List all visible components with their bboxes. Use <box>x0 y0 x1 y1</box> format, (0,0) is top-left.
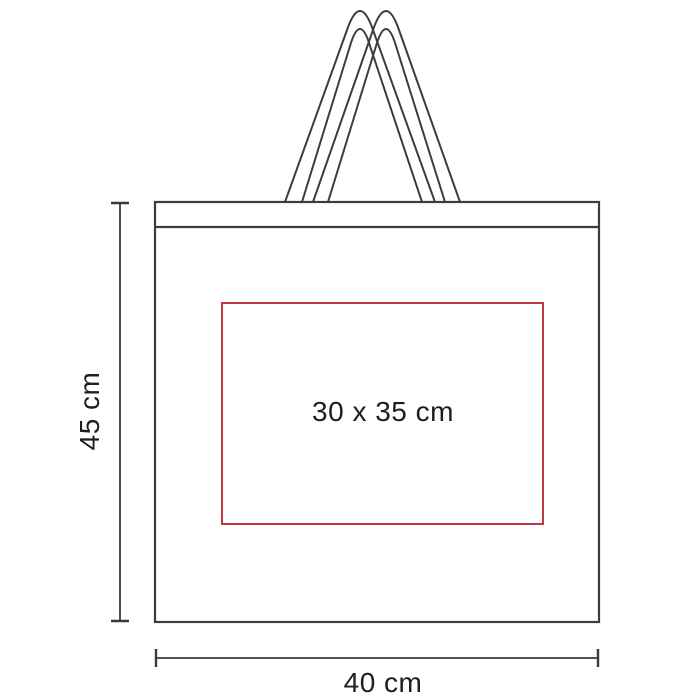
width-dimension-label: 40 cm <box>344 667 423 698</box>
handle-strap2-inner <box>328 29 445 202</box>
width-dimension-line <box>156 649 598 667</box>
handle-strap2-outer <box>313 11 460 202</box>
bag-dimension-diagram: 30 x 35 cm 45 cm 40 cm <box>0 0 700 700</box>
print-area-label: 30 x 35 cm <box>312 396 454 427</box>
height-dimension-line <box>111 203 129 621</box>
height-dimension-label: 45 cm <box>74 372 105 451</box>
diagram-canvas: 30 x 35 cm 45 cm 40 cm <box>0 0 700 700</box>
bag-handles-icon <box>285 11 460 202</box>
